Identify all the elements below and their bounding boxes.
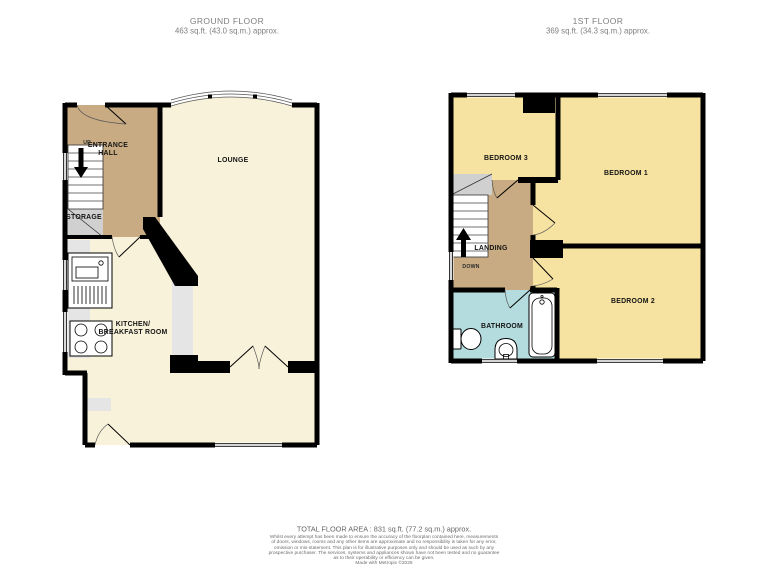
total-floor-area: TOTAL FLOOR AREA : 831 sq.ft. (77.2 sq.m… [297,525,471,534]
floorplan-page: GROUND FLOOR 463 sq.ft. (43.0 sq.m.) app… [0,0,768,573]
lounge-door-wall-right [288,361,317,373]
bedroom1-label: BEDROOM 1 [604,170,648,178]
entrance-hall-label-line2: HALL [88,150,128,158]
sink-icon [495,339,517,360]
bedroom3-label: BEDROOM 3 [484,155,528,163]
ground-floor-title: GROUND FLOOR [190,16,264,26]
kitchen-counter-lower [87,398,111,411]
bedroom2-window [597,359,663,364]
hall-window [63,153,68,180]
landing-floor [488,180,533,290]
storage-label: STORAGE [66,214,102,222]
kitchen-label-line1: KITCHEN/ [99,321,168,329]
entrance-hall-label: ENTRANCE HALL [88,142,128,158]
kitchen-window-2 [63,312,68,352]
bedroom2-label: BEDROOM 2 [611,298,655,306]
bathroom-label: BATHROOM [481,323,523,331]
landing-floor-lower [451,257,488,290]
bedroom3-wall-stub [518,177,558,183]
breakfast-room-window [215,443,282,448]
entrance-hall-label-line1: ENTRANCE [88,142,128,150]
lounge-label: LOUNGE [218,157,249,165]
kitchen-label-line2: BREAKFAST ROOM [99,329,168,337]
first-floor-title: 1ST FLOOR [573,16,624,26]
stairs-up-label: UP [83,140,91,146]
lounge-door-wall-left [198,361,230,373]
landing-window [449,252,454,280]
kitchen-label: KITCHEN/ BREAKFAST ROOM [99,321,168,337]
bedroom3-window [467,93,515,98]
toilet-icon [453,329,481,350]
first-floor-area: 369 sq.ft. (34.3 sq.m.) approx. [546,27,650,36]
landing-label: LANDING [474,245,507,253]
kitchen-peninsula [172,281,193,355]
disclaimer: Whilst every attempt has been made to en… [0,535,768,567]
kitchen-wall-stub [170,355,198,373]
kitchen-sink-icon [68,253,112,308]
credit-line: Made with Metropix ©2025 [0,561,768,566]
stairs-down-label: DOWN [462,264,479,270]
bedroom1-window [598,93,667,98]
ground-floor-area: 463 sq.ft. (43.0 sq.m.) approx. [175,27,279,36]
kitchen-window-1 [63,260,68,290]
bathtub-icon [529,293,555,357]
